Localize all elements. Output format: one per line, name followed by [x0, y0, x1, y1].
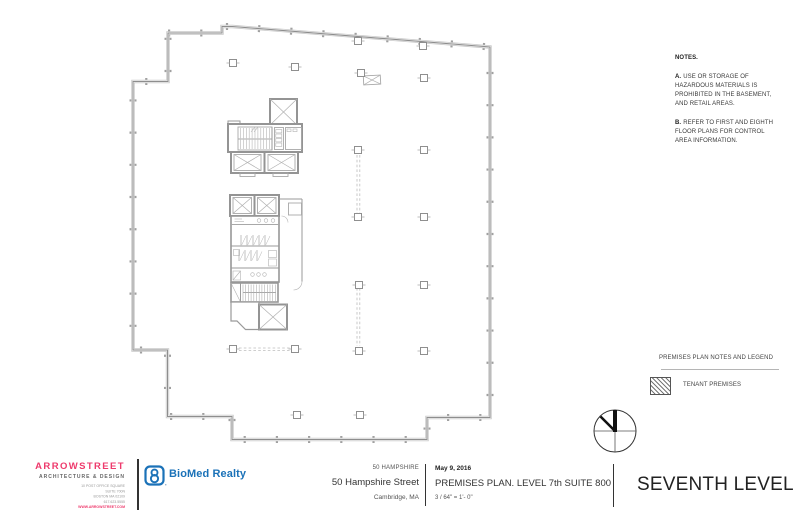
- core-upper: [228, 99, 302, 177]
- note-item-a: A.USE OR STORAGE OF HAZARDOUS MATERIALS …: [675, 73, 783, 109]
- tenant-premises-label: TENANT PREMISES: [683, 382, 741, 388]
- elevator-bank-upper: [231, 152, 298, 177]
- titleblock-divider-3: [613, 464, 614, 507]
- core-lower: [230, 195, 302, 330]
- building-outline: [133, 27, 490, 440]
- note-b-label: B.: [675, 120, 681, 126]
- note-a-label: A.: [675, 74, 681, 80]
- sheet-info-block: May 9, 2016 PREMISES PLAN. LEVEL 7th SUI…: [435, 465, 611, 501]
- architect-address: 10 POST OFFICE SQUARE SUITE 700N BOSTON …: [33, 484, 125, 510]
- restroom-block: [231, 216, 279, 282]
- note-item-b: B.REFER TO FIRST AND EIGHTH FLOOR PLANS …: [675, 119, 783, 146]
- architect-website: WWW.ARROWSTREET.COM: [33, 505, 125, 510]
- drawing-sheet: NOTES. A.USE OR STORAGE OF HAZARDOUS MAT…: [0, 0, 800, 518]
- plan-annotation-box: [363, 75, 380, 85]
- project-city: Cambridge, MA: [300, 494, 419, 501]
- titleblock-divider-1: [137, 459, 139, 510]
- sheet-date: May 9, 2016: [435, 465, 611, 472]
- titleblock-divider-2: [425, 464, 426, 506]
- legend-divider: [661, 369, 779, 370]
- architect-logo-block: ARROWSTREET ARCHITECTURE & DESIGN 10 POS…: [33, 461, 125, 518]
- legend-title: PREMISES PLAN NOTES AND LEGEND: [648, 355, 784, 361]
- architect-tagline: ARCHITECTURE & DESIGN: [33, 474, 125, 480]
- north-arrow-compass: [594, 410, 636, 452]
- notes-block: NOTES. A.USE OR STORAGE OF HAZARDOUS MAT…: [675, 54, 783, 156]
- project-info-block: 50 HAMPSHIRE 50 Hampshire Street Cambrid…: [300, 465, 419, 501]
- project-label: 50 HAMPSHIRE: [300, 465, 419, 471]
- sheet-scale: 3 / 64" = 1'- 0": [435, 495, 611, 501]
- sheet-title: PREMISES PLAN. LEVEL 7th SUITE 800: [435, 478, 611, 489]
- biomed-logo-icon: [144, 465, 168, 488]
- architect-name: ARROWSTREET: [33, 461, 125, 472]
- tenant-premises-swatch: [650, 377, 671, 395]
- elevator-bank-lower: [230, 195, 279, 216]
- project-street: 50 Hampshire Street: [300, 477, 419, 488]
- client-name: BioMed Realty: [169, 468, 246, 480]
- level-name: SEVENTH LEVEL: [637, 474, 794, 496]
- notes-title: NOTES.: [675, 54, 783, 63]
- stair-lower: [231, 283, 278, 302]
